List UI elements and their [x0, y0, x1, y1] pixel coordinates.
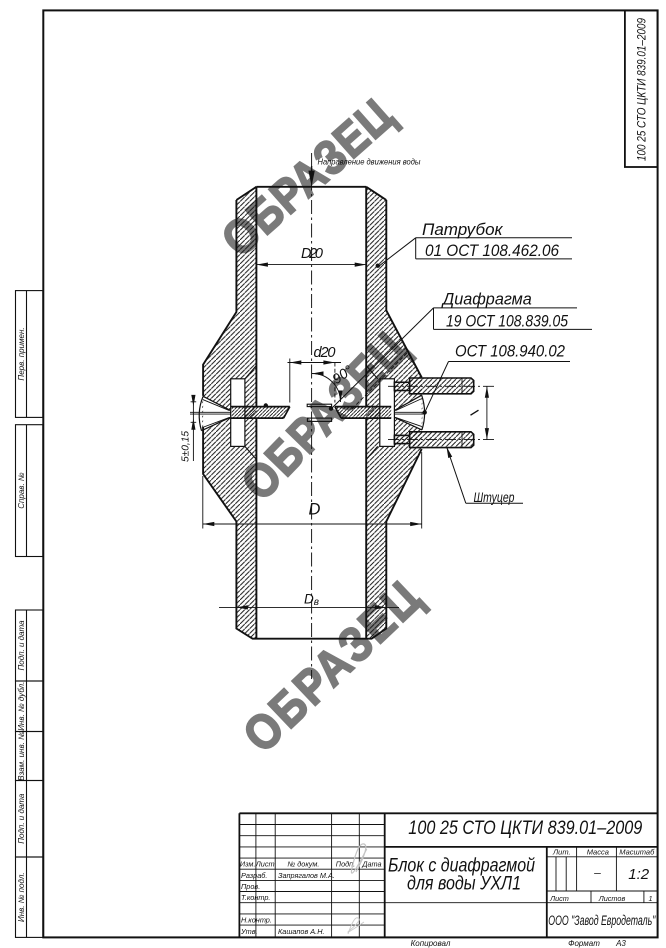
svg-text:Перв. примен.: Перв. примен.: [17, 327, 26, 380]
svg-text:Запрягалов М.А.: Запрягалов М.А.: [278, 871, 335, 880]
svg-text:1: 1: [648, 894, 652, 903]
svg-text:1:2: 1:2: [628, 866, 650, 883]
svg-text:для воды УХЛ1: для воды УХЛ1: [407, 873, 521, 895]
svg-text:Формат: Формат: [568, 939, 600, 948]
svg-text:–: –: [593, 866, 601, 880]
svg-text:Н.контр.: Н.контр.: [241, 916, 272, 925]
svg-text:Штуцер: Штуцер: [474, 489, 515, 505]
svg-text:Справ. №: Справ. №: [17, 472, 26, 509]
svg-text:Подп. и дата: Подп. и дата: [17, 620, 26, 671]
svg-text:Кашапов А.Н.: Кашапов А.Н.: [278, 927, 325, 936]
svg-text:Лит.: Лит.: [552, 848, 571, 857]
svg-text:Подп. и дата: Подп. и дата: [17, 793, 26, 844]
svg-text:Взам. инв. №: Взам. инв. №: [17, 731, 26, 781]
svg-text:100 25 СТО ЦКТИ 839.01–2009: 100 25 СТО ЦКТИ 839.01–2009: [408, 818, 642, 839]
svg-text:№ докум.: № докум.: [287, 860, 319, 869]
svg-text:Инв. № дубл.: Инв. № дубл.: [17, 682, 26, 731]
svg-text:19 ОСТ 108.839.05: 19 ОСТ 108.839.05: [446, 312, 568, 331]
svg-text:Изм.: Изм.: [240, 860, 256, 869]
svg-text:Направление движения воды: Направление движения воды: [318, 157, 421, 167]
svg-text:d20: d20: [314, 345, 336, 361]
svg-text:Масштаб: Масштаб: [619, 848, 655, 857]
svg-text:Листов: Листов: [598, 894, 626, 903]
svg-text:А3: А3: [615, 939, 626, 948]
svg-text:Патрубок: Патрубок: [422, 220, 504, 239]
svg-text:Диафрагма: Диафрагма: [441, 290, 532, 309]
svg-text:D: D: [309, 501, 321, 519]
svg-text:ОСТ 108.940.02: ОСТ 108.940.02: [455, 342, 565, 361]
svg-text:Разраб.: Разраб.: [241, 871, 267, 880]
svg-text:Копировал: Копировал: [411, 939, 451, 948]
svg-text:Пров.: Пров.: [241, 882, 260, 891]
svg-text:Лист: Лист: [549, 894, 569, 903]
svg-text:100 25 СТО ЦКТИ 839.01–2009: 100 25 СТО ЦКТИ 839.01–2009: [637, 17, 649, 161]
svg-text:Масса: Масса: [587, 848, 609, 857]
svg-text:Дата: Дата: [361, 860, 381, 869]
svg-text:ООО "Завод Евродеталь": ООО "Завод Евродеталь": [548, 913, 656, 928]
svg-text:Т.контр.: Т.контр.: [241, 893, 270, 902]
svg-text:Инв. № подл.: Инв. № подл.: [17, 872, 26, 922]
svg-text:01 ОСТ 108.462.06: 01 ОСТ 108.462.06: [425, 241, 559, 260]
svg-text:Лист: Лист: [255, 860, 275, 869]
svg-text:D20: D20: [301, 246, 323, 262]
svg-text:5±0,15: 5±0,15: [181, 431, 192, 462]
svg-text:Утв.: Утв.: [240, 927, 258, 936]
